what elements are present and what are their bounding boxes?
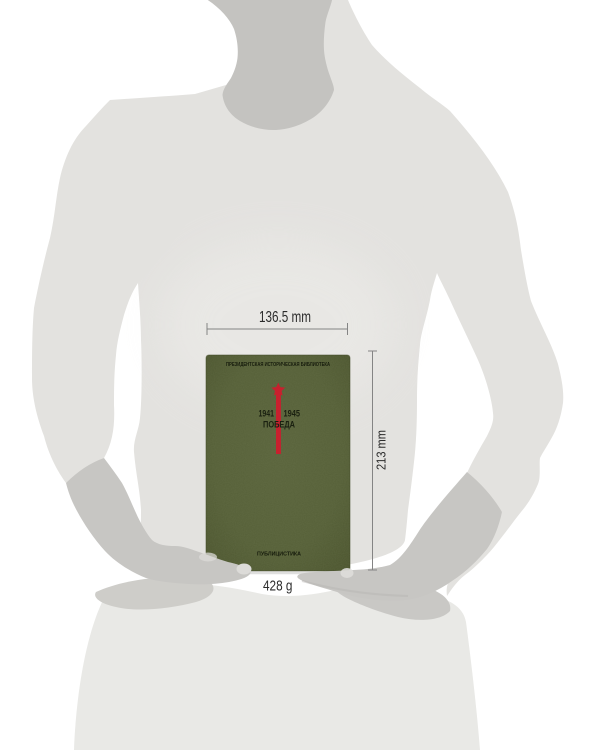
svg-text:136.5 mm: 136.5 mm [259,309,311,326]
svg-text:ПУБЛИЦИСТИКА: ПУБЛИЦИСТИКА [257,552,302,558]
svg-text:ПРЕЗИДЕНТСКАЯ ИСТОРИЧЕСКАЯ БИБ: ПРЕЗИДЕНТСКАЯ ИСТОРИЧЕСКАЯ БИБЛИОТЕКА [226,362,330,368]
svg-text:1945: 1945 [284,409,301,419]
svg-text:ПОБЕДА: ПОБЕДА [263,420,295,430]
svg-text:428 g: 428 g [263,579,293,595]
svg-text:1941: 1941 [259,409,275,419]
svg-text:213 mm: 213 mm [374,430,389,470]
